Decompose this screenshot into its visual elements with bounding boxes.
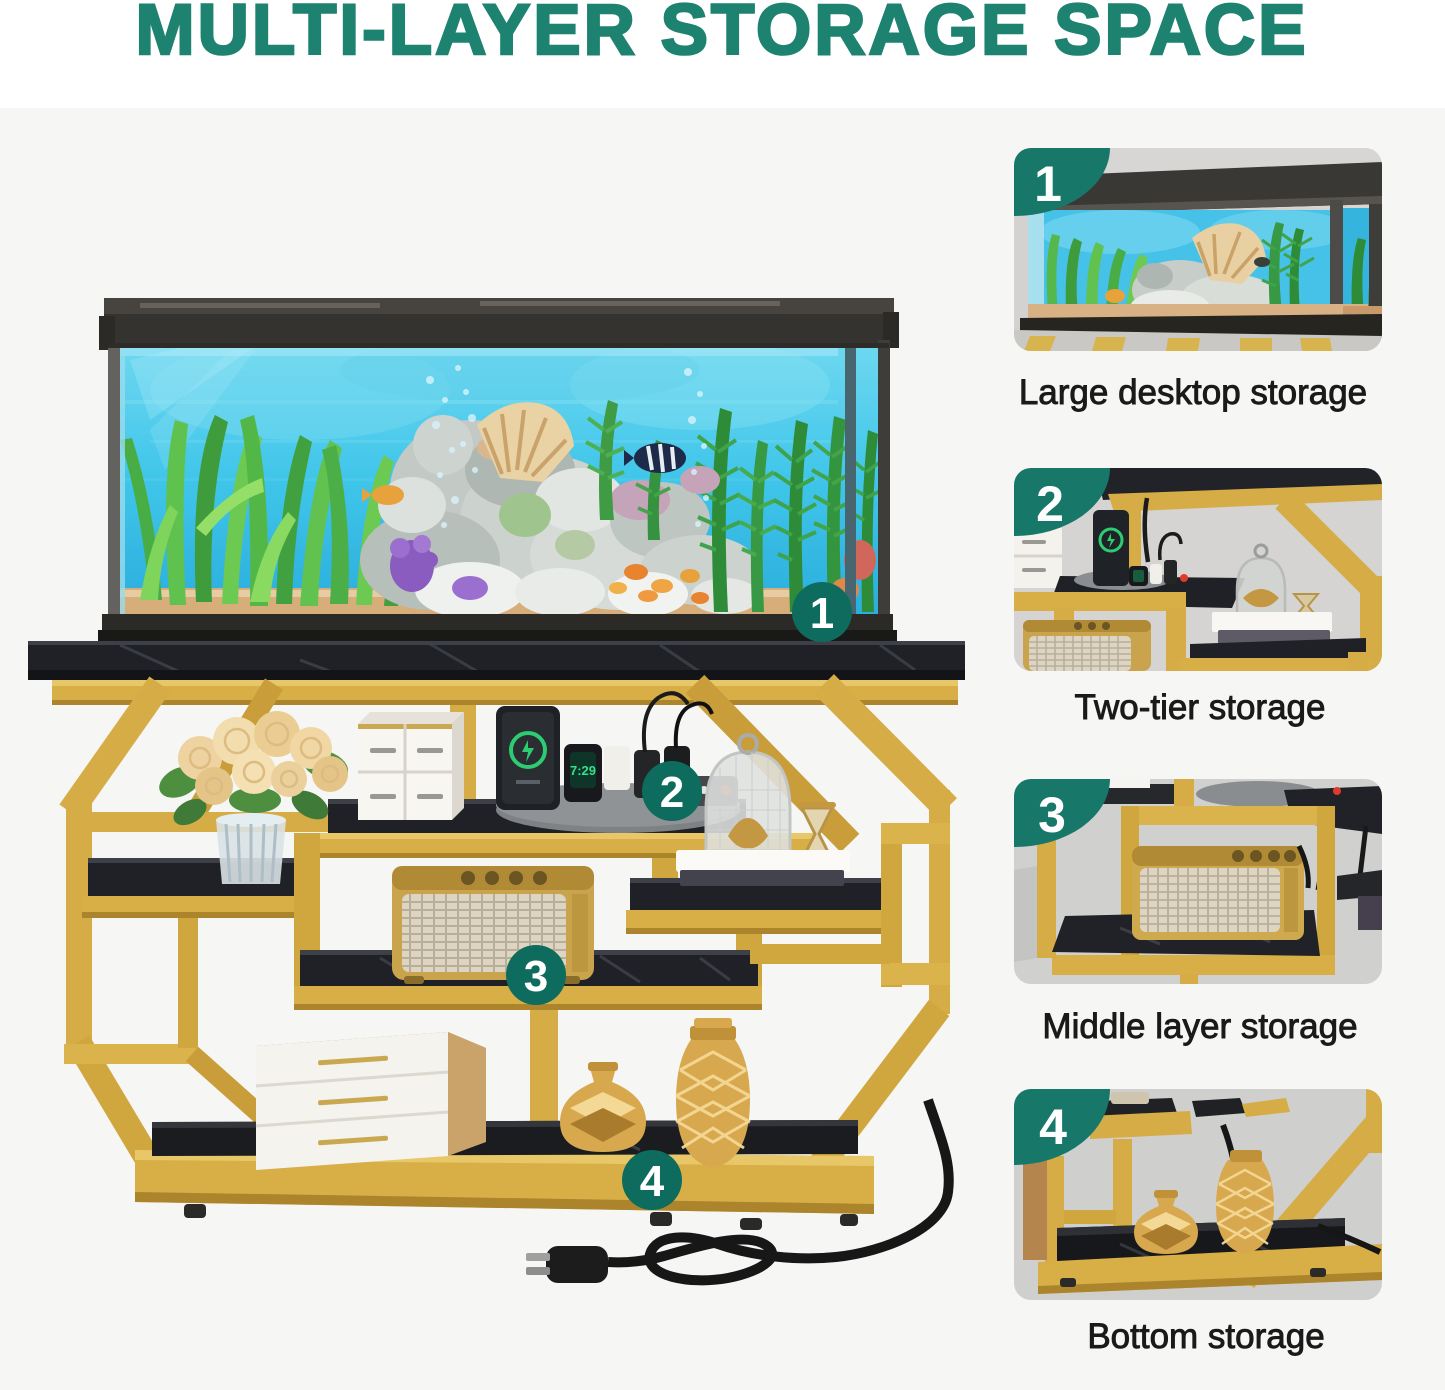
svg-text:MULTI-LAYER STORAGE SPACE: MULTI-LAYER STORAGE SPACE (136, 0, 1309, 70)
svg-text:1: 1 (1034, 156, 1062, 212)
svg-text:7:29: 7:29 (570, 763, 596, 778)
svg-text:Large desktop storage: Large desktop storage (1019, 373, 1367, 412)
svg-text:4: 4 (1039, 1099, 1067, 1155)
svg-text:2: 2 (1036, 476, 1064, 532)
svg-text:Bottom storage: Bottom storage (1087, 1317, 1324, 1356)
svg-text:4: 4 (640, 1157, 665, 1206)
svg-text:3: 3 (524, 952, 548, 1001)
svg-text:3: 3 (1038, 787, 1066, 843)
svg-text:1: 1 (810, 589, 834, 638)
svg-text:Middle layer storage: Middle layer storage (1042, 1007, 1357, 1046)
svg-text:2: 2 (660, 768, 684, 817)
svg-text:Two-tier storage: Two-tier storage (1075, 688, 1326, 727)
